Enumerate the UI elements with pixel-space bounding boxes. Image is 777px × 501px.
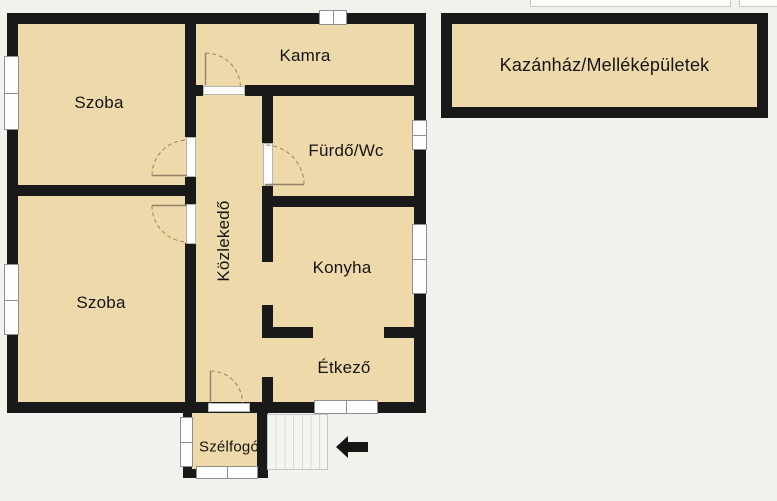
room-label-etkezo: Étkező [317, 358, 370, 378]
room-label-konyha: Konyha [313, 258, 372, 278]
room-label-szoba-2: Szoba [76, 293, 125, 313]
room-label-szoba-1: Szoba [74, 93, 123, 113]
window-szoba-1 [4, 56, 19, 130]
wall-corridor-right-d [262, 377, 273, 402]
partial-frame-top-right [739, 0, 777, 7]
outbuilding-kazanhaz: Kazánház/Melléképületek [441, 13, 768, 118]
wall-corridor-right-a [262, 85, 273, 143]
wall-kamra-bottom-a [185, 85, 203, 96]
wall-outer-right [414, 13, 426, 413]
wall-szoba-divider [7, 185, 196, 196]
door-opening-szoba-2 [186, 204, 196, 244]
window-szoba-2 [4, 264, 19, 335]
entrance-arrow-icon [336, 436, 368, 458]
wall-konyha-etkezo-right [384, 327, 426, 338]
window-etkezo [314, 400, 378, 414]
room-label-kamra: Kamra [279, 46, 330, 66]
room-label-furdo-wc: Fürdő/Wc [308, 141, 383, 161]
wall-konyha-etkezo-left [262, 327, 313, 338]
wall-outer-top [7, 13, 426, 24]
wall-furdo-bottom [262, 196, 426, 207]
partial-frame-top-left [530, 0, 731, 7]
wall-corridor-right-c [262, 207, 273, 262]
window-kamra [319, 10, 347, 25]
door-opening-szoba-1 [186, 137, 196, 177]
door-opening-szelfogo [208, 403, 250, 412]
window-furdo [412, 120, 427, 150]
room-label-kozlekedo: Közlekedő [214, 200, 234, 281]
window-szelfogo-left [180, 417, 193, 467]
room-label-kazanhaz: Kazánház/Melléképületek [500, 55, 710, 76]
room-label-szelfogo: Szélfogó [199, 439, 259, 456]
wall-corridor-left-c [185, 243, 196, 402]
door-opening-furdo [263, 143, 273, 186]
wall-corridor-left-a [185, 13, 196, 137]
floorplan-canvas: Kazánház/Melléképületek Szoba Szoba Kamr… [0, 0, 777, 501]
door-opening-kamra [203, 86, 245, 95]
window-szelfogo-bottom [196, 466, 258, 479]
window-konyha [412, 224, 427, 294]
entrance-stairs [267, 414, 328, 470]
